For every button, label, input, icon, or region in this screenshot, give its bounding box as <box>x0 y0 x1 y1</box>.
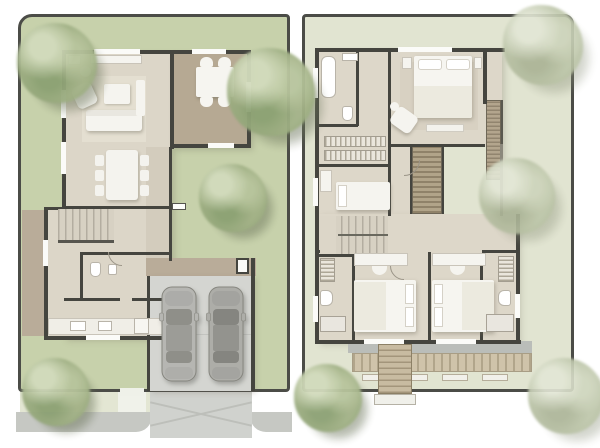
rwindow-bath2-left <box>313 296 318 322</box>
wall-bath-bottom-a <box>64 298 120 301</box>
tree-bottom-left <box>22 358 90 426</box>
toilet-master <box>342 106 353 121</box>
window-left-dining <box>61 142 66 174</box>
master-bench <box>426 124 464 132</box>
kitchen-island-box <box>134 318 149 334</box>
terrace-chair-1 <box>200 57 213 67</box>
sink-ground <box>108 264 117 275</box>
wardrobe-row-2 <box>324 150 386 161</box>
rwindow-master-top <box>398 47 452 52</box>
side-patio <box>22 210 46 336</box>
bath3-cabinet <box>498 256 514 282</box>
stairs-upper-rail <box>338 234 388 236</box>
car-right <box>206 285 246 383</box>
pergola-post-3 <box>442 374 468 381</box>
tree-top-left <box>17 23 97 103</box>
dining-chair-6 <box>140 185 149 196</box>
wardrobe-row-1 <box>324 136 386 147</box>
desk-bed3 <box>432 253 486 266</box>
garage-door-box <box>236 258 249 274</box>
bath2-cabinet <box>320 258 335 282</box>
tree-terrace-corner-canopy <box>227 48 315 136</box>
sofa-back <box>86 110 142 116</box>
rwall-right-top <box>483 48 487 104</box>
window-left-wing <box>43 240 48 266</box>
stairs-ground <box>58 209 114 240</box>
stairs-ground-rail <box>58 240 114 243</box>
bath2-toilet <box>320 290 333 306</box>
nightstand-2 <box>474 57 482 69</box>
yard-bench <box>172 203 186 210</box>
bed3-pillow-1 <box>434 284 443 304</box>
car-left-icon <box>159 285 199 383</box>
rwindow-bed2-bottom <box>364 339 404 344</box>
master-pillow-2 <box>446 59 470 70</box>
tree-center-left-plot-canopy <box>199 164 267 232</box>
rwindow-bath3-right <box>515 294 520 318</box>
tree-top-right-canopy <box>503 5 583 85</box>
coffee-table <box>104 84 130 104</box>
rwall-louver-left <box>410 144 412 214</box>
master-pillow-1 <box>418 59 442 70</box>
bed2-pillow-2 <box>405 307 414 327</box>
wall-living-terrace <box>170 50 174 149</box>
tree-terrace-corner <box>227 48 315 136</box>
bench-seat <box>136 80 145 116</box>
rwall-closet-bottom <box>318 164 390 167</box>
car-right-icon <box>206 285 246 383</box>
desk-bed2 <box>354 253 408 266</box>
vanity-sink-top <box>342 53 358 61</box>
kitchen-stove <box>98 321 112 331</box>
stairs-upper-landing <box>320 216 336 254</box>
floor-plan-canvas <box>0 0 600 448</box>
bed2-blanket <box>354 282 386 330</box>
louver-screen <box>412 145 442 214</box>
rwall-beds-divider <box>428 252 431 342</box>
exterior-stair-landing <box>374 394 416 405</box>
nightstand-1 <box>402 57 412 69</box>
rwall-corridor-b <box>482 250 518 253</box>
tree-top-left-canopy <box>17 23 97 103</box>
tree-bottom-center-canopy <box>294 364 362 432</box>
tree-right-middle <box>479 158 555 234</box>
bed2-pillow-1 <box>405 284 414 304</box>
tree-bottom-right <box>528 358 600 434</box>
tree-bottom-right-canopy <box>528 358 600 434</box>
tree-right-middle-canopy <box>479 158 555 234</box>
tree-top-right <box>503 5 583 85</box>
rwall-louver-right <box>442 144 444 214</box>
dining-chair-1 <box>95 155 104 166</box>
dining-chair-5 <box>140 170 149 181</box>
bath3-shower <box>486 314 514 332</box>
toilet-ground <box>90 262 101 277</box>
bed3-pillow-2 <box>434 307 443 327</box>
rwall-bottom <box>315 340 521 344</box>
wall-garage-right <box>251 258 255 391</box>
tree-center-left-plot <box>199 164 267 232</box>
tree-bottom-left-canopy <box>22 358 90 426</box>
master-side-table <box>390 102 399 111</box>
exterior-stair <box>378 344 412 394</box>
dining-chair-3 <box>95 185 104 196</box>
car-left <box>159 285 199 383</box>
bath3-toilet <box>498 290 511 306</box>
rwindow-smallroom-left <box>313 178 318 206</box>
small-room-desk <box>320 170 332 192</box>
pergola-post-4 <box>482 374 508 381</box>
bath2-shower <box>320 316 346 332</box>
rwall-bath-bottom <box>318 124 358 127</box>
rwall-master-bottom <box>390 144 485 147</box>
wall-bath-top <box>80 252 172 255</box>
rwindow-bed3-bottom <box>436 339 476 344</box>
dining-table <box>106 150 138 200</box>
wall-bath-left <box>80 252 83 300</box>
opening-terrace-bottom <box>208 143 234 148</box>
kitchen-sink <box>70 321 86 331</box>
master-blanket <box>414 86 472 118</box>
window-terrace-top <box>192 49 226 54</box>
dining-chair-4 <box>140 155 149 166</box>
sidewalk-right-stub <box>250 412 292 432</box>
small-room-pillow <box>338 185 347 207</box>
dining-chair-2 <box>95 170 104 181</box>
wall-left-wing <box>44 207 48 339</box>
gate-gap <box>120 388 144 396</box>
window-kitchen <box>86 335 120 340</box>
tree-bottom-center <box>294 364 362 432</box>
